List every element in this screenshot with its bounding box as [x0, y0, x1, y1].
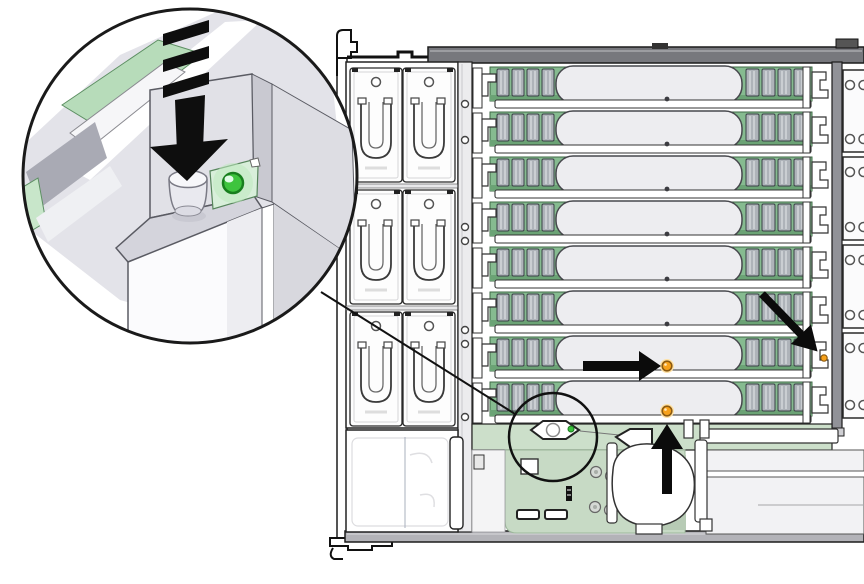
- dimm: [512, 159, 524, 186]
- fan-bay-separator: [346, 306, 458, 310]
- wall-screw: [462, 341, 469, 348]
- fan-screw: [425, 200, 434, 209]
- fan-screw: [425, 78, 434, 87]
- right-edge-panels: [843, 70, 864, 418]
- fan-handle-clip: [384, 98, 392, 104]
- magnifier-callout: [18, 8, 357, 348]
- dimm: [497, 294, 509, 321]
- riser-left-rail: [473, 248, 482, 288]
- fan-handle-clip: [384, 342, 392, 348]
- dimm: [746, 159, 759, 186]
- dimm: [746, 204, 759, 231]
- riser-row-4: [473, 201, 828, 243]
- fan-corner-mark: [394, 68, 400, 72]
- riser-row-2: [473, 111, 828, 153]
- riser-right-rail: [803, 157, 810, 198]
- panel-hole: [859, 401, 864, 410]
- fan-screw: [372, 200, 381, 209]
- dimm: [497, 159, 509, 186]
- riser-7-edge-led: [821, 355, 827, 361]
- dimm: [527, 114, 539, 141]
- green-status-led: [223, 173, 243, 193]
- latch-status-led: [568, 426, 574, 432]
- riser-cover: [556, 246, 742, 283]
- board-connector: [517, 510, 539, 519]
- fan-handle-clip: [358, 220, 366, 226]
- panel-hole: [859, 311, 864, 320]
- riser-cover: [556, 381, 742, 418]
- panel-hole: [846, 401, 855, 410]
- dimm: [778, 69, 791, 96]
- board-socket-square: [521, 459, 538, 474]
- riser-left-rail: [473, 293, 482, 333]
- dimm: [542, 69, 554, 96]
- right-panel-2: [843, 157, 864, 240]
- release-button-top: [547, 424, 560, 437]
- riser-3-cover-led: [665, 187, 670, 192]
- wall-screw: [462, 414, 469, 421]
- dimm: [542, 339, 554, 366]
- dimm: [527, 69, 539, 96]
- lower-bay-rail: [450, 437, 463, 529]
- fan-corner-mark: [447, 312, 453, 316]
- fan-module-2: [350, 190, 455, 304]
- panel-tab: [700, 519, 712, 531]
- panel-hole: [859, 135, 864, 144]
- dimm: [497, 339, 509, 366]
- dimm: [512, 114, 524, 141]
- dimm: [778, 114, 791, 141]
- riser-right-rail: [803, 202, 810, 243]
- panel-hole: [846, 81, 855, 90]
- dimm: [762, 339, 775, 366]
- dimm: [778, 384, 791, 411]
- dimm: [542, 294, 554, 321]
- dimm: [778, 339, 791, 366]
- dimm: [746, 249, 759, 276]
- riser-cover: [556, 156, 742, 193]
- panel-hole: [859, 168, 864, 177]
- panel-hole: [859, 344, 864, 353]
- riser-cover: [556, 66, 742, 103]
- fan-module-1: [350, 68, 455, 182]
- riser-edge-bar: [495, 100, 811, 108]
- dimm: [497, 69, 509, 96]
- riser-right-ejector: [812, 297, 828, 323]
- standoff-center: [594, 470, 598, 474]
- riser-cover: [556, 291, 742, 328]
- dimm: [527, 294, 539, 321]
- riser-left-rail: [473, 158, 482, 198]
- panel-hole: [846, 168, 855, 177]
- fan-handle-clip: [411, 220, 419, 226]
- fan-handle-clip: [411, 98, 419, 104]
- dimm: [778, 249, 791, 276]
- chassis-top-edge: [428, 47, 864, 63]
- panel-hole: [859, 81, 864, 90]
- riser-right-ejector: [812, 162, 828, 188]
- air-duct: [612, 444, 694, 526]
- left-board-bracket: [474, 455, 484, 469]
- dimm: [542, 114, 554, 141]
- riser-right-rail: [803, 112, 810, 153]
- dimm: [762, 249, 775, 276]
- fan-handle-clip: [358, 342, 366, 348]
- riser-4-cover-led: [665, 232, 670, 237]
- lower-right-panel: [706, 450, 864, 471]
- dimm: [762, 384, 775, 411]
- dimm: [527, 339, 539, 366]
- chassis-top-tab: [652, 43, 668, 49]
- fan-corner-mark: [405, 312, 411, 316]
- dimm: [527, 204, 539, 231]
- fan-handle-clip: [411, 342, 419, 348]
- riser-edge-bar: [495, 235, 811, 243]
- led-highlight: [664, 363, 667, 366]
- fan-handle-clip: [437, 342, 445, 348]
- illustration-svg: [0, 0, 864, 584]
- fan-corner-mark: [405, 190, 411, 194]
- fan-module-3: [350, 312, 455, 426]
- board-barcode: [566, 486, 572, 501]
- dimm: [497, 249, 509, 276]
- wall-screw: [462, 224, 469, 231]
- dimm: [746, 114, 759, 141]
- dimm: [762, 69, 775, 96]
- dimm: [746, 294, 759, 321]
- fan-corner-mark: [394, 312, 400, 316]
- riser-7-cover-led: [662, 361, 672, 371]
- riser-right-rail: [803, 247, 810, 288]
- board-connector: [545, 510, 567, 519]
- riser-cover: [556, 201, 742, 238]
- wall-screw: [462, 327, 469, 334]
- dimm: [542, 249, 554, 276]
- riser-row-5: [473, 246, 828, 288]
- air-duct-foot: [636, 524, 662, 534]
- dimm: [746, 384, 759, 411]
- riser-left-rail: [473, 338, 482, 378]
- socket-post: [684, 420, 693, 438]
- panel-hole: [859, 256, 864, 265]
- right-panel-4: [843, 333, 864, 418]
- riser-right-rail: [803, 67, 810, 108]
- fan-screw: [372, 78, 381, 87]
- panel-hole: [846, 344, 855, 353]
- fan-corner-mark: [447, 68, 453, 72]
- wall-screw: [462, 137, 469, 144]
- riser-socket-bar: [700, 429, 838, 443]
- fan-corner-mark: [352, 68, 358, 72]
- fan-bay: [350, 68, 455, 426]
- fan-corner-mark: [394, 190, 400, 194]
- dimm: [512, 249, 524, 276]
- riser-1-cover-led: [665, 97, 670, 102]
- chassis-top-right-bracket: [836, 39, 858, 48]
- riser-left-rail: [473, 203, 482, 243]
- socket-post: [700, 420, 709, 438]
- riser-right-ejector: [812, 387, 828, 413]
- fan-corner-mark: [447, 190, 453, 194]
- riser-right-ejector: [812, 207, 828, 233]
- panel-hole: [846, 223, 855, 232]
- dimm: [527, 249, 539, 276]
- riser-edge-bar: [495, 325, 811, 333]
- dimm: [497, 114, 509, 141]
- riser-edge-bar: [495, 280, 811, 288]
- panel-hole: [846, 311, 855, 320]
- riser-right-rail: [803, 382, 810, 423]
- dimm: [512, 339, 524, 366]
- dimm: [762, 204, 775, 231]
- fan-bay-separator: [346, 184, 458, 188]
- riser-6-cover-led: [665, 322, 670, 327]
- dimm: [512, 294, 524, 321]
- riser-right-ejector: [812, 117, 828, 143]
- dimm: [778, 159, 791, 186]
- riser-right-ejector: [812, 252, 828, 278]
- fan-corner-mark: [405, 68, 411, 72]
- right-wall: [832, 62, 842, 430]
- top-step-line: [347, 52, 428, 57]
- fan-screw: [425, 322, 434, 331]
- dimm: [542, 159, 554, 186]
- riser-edge-bar: [495, 145, 811, 153]
- riser-row-1: [473, 66, 828, 108]
- riser-2-cover-led: [665, 142, 670, 147]
- riser-left-rail: [473, 113, 482, 153]
- panel-hole: [846, 135, 855, 144]
- dimm: [512, 204, 524, 231]
- riser-row-3: [473, 156, 828, 198]
- panel-rail: [695, 440, 707, 522]
- panel-hole: [859, 223, 864, 232]
- fan-handle-clip: [384, 220, 392, 226]
- right-panel-1: [843, 70, 864, 152]
- dimm: [542, 204, 554, 231]
- standoff-center: [593, 505, 597, 509]
- dimm: [762, 114, 775, 141]
- dimm: [512, 69, 524, 96]
- dimm: [746, 69, 759, 96]
- dimm: [762, 159, 775, 186]
- fan-handle-clip: [437, 220, 445, 226]
- wall-screw: [462, 238, 469, 245]
- fan-handle-clip: [358, 98, 366, 104]
- riser-left-rail: [473, 68, 482, 108]
- lower-bay: [346, 430, 458, 532]
- dimm: [542, 384, 554, 411]
- riser-right-ejector: [812, 72, 828, 98]
- riser-5-cover-led: [665, 277, 670, 282]
- dimm: [497, 204, 509, 231]
- right-panel-3: [843, 245, 864, 328]
- fan-handle-clip: [437, 98, 445, 104]
- led-highlight: [664, 408, 667, 411]
- riser-cover: [556, 111, 742, 148]
- bottom-left-hook: [331, 548, 343, 559]
- dimm: [527, 159, 539, 186]
- riser-8-cover-led: [662, 406, 672, 416]
- panel-hole: [846, 256, 855, 265]
- dimm: [746, 339, 759, 366]
- dimm: [778, 204, 791, 231]
- server-top-view-illustration: [0, 0, 864, 584]
- riser-edge-bar: [495, 190, 811, 198]
- wall-screw: [462, 101, 469, 108]
